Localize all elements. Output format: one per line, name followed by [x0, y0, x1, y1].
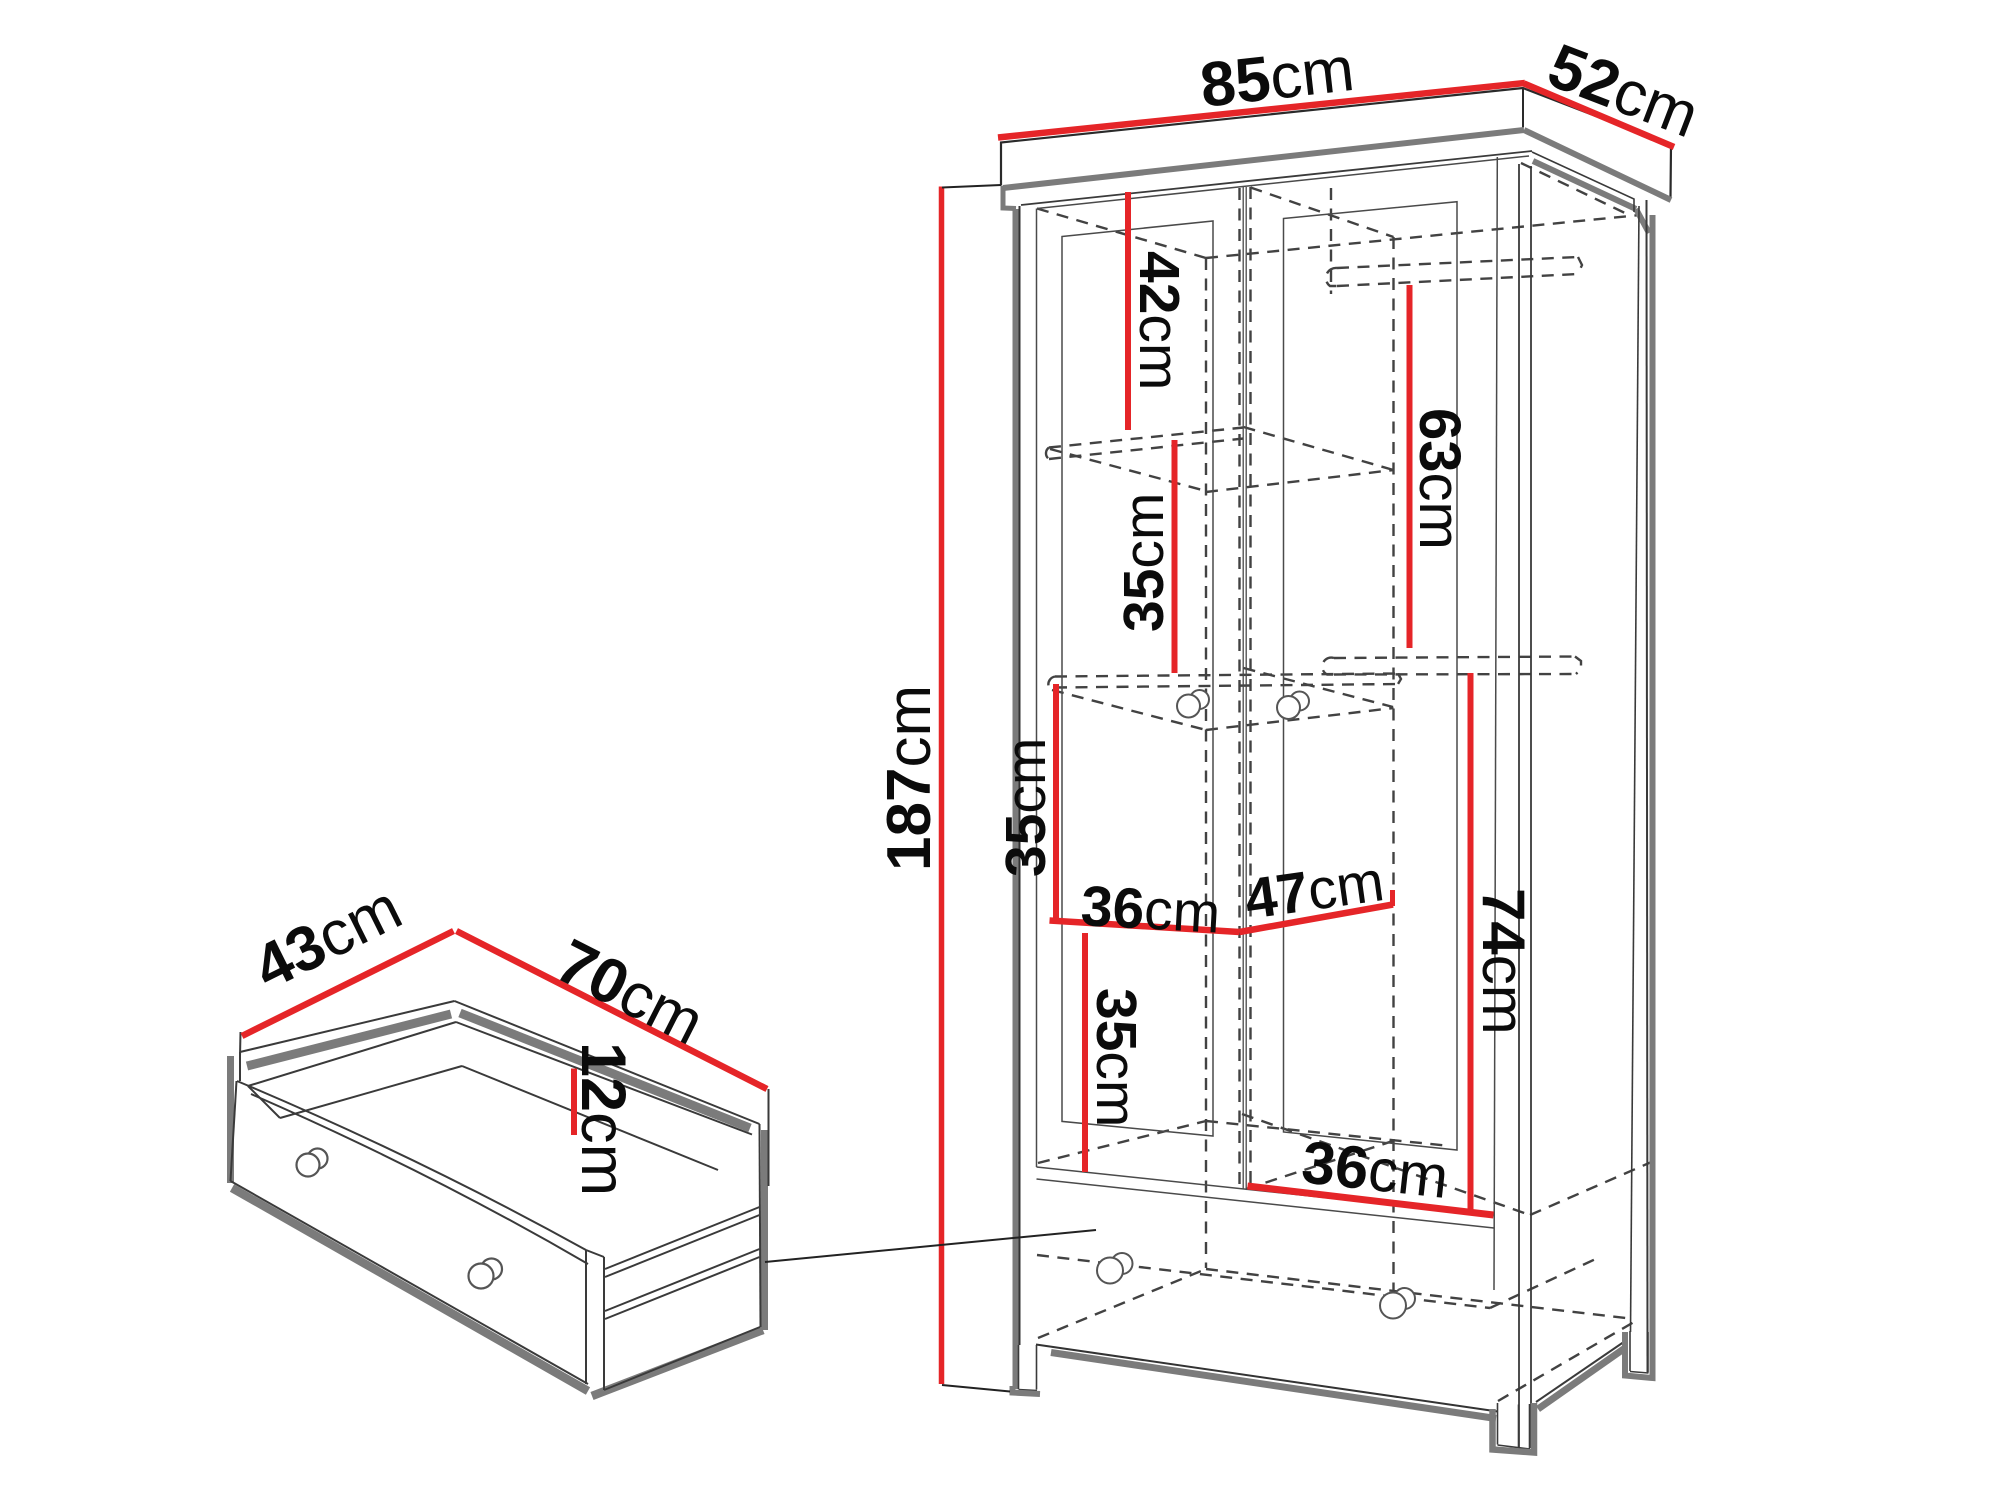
svg-text:63cm: 63cm [1407, 408, 1472, 550]
svg-text:35cm: 35cm [1084, 988, 1148, 1127]
svg-text:187cm: 187cm [875, 685, 944, 871]
svg-text:36cm: 36cm [1079, 874, 1222, 946]
svg-text:74cm: 74cm [1470, 888, 1537, 1035]
svg-text:42cm: 42cm [1127, 251, 1191, 390]
svg-text:12cm: 12cm [568, 1042, 638, 1196]
svg-text:35cm: 35cm [994, 738, 1058, 877]
svg-text:35cm: 35cm [1112, 493, 1176, 632]
